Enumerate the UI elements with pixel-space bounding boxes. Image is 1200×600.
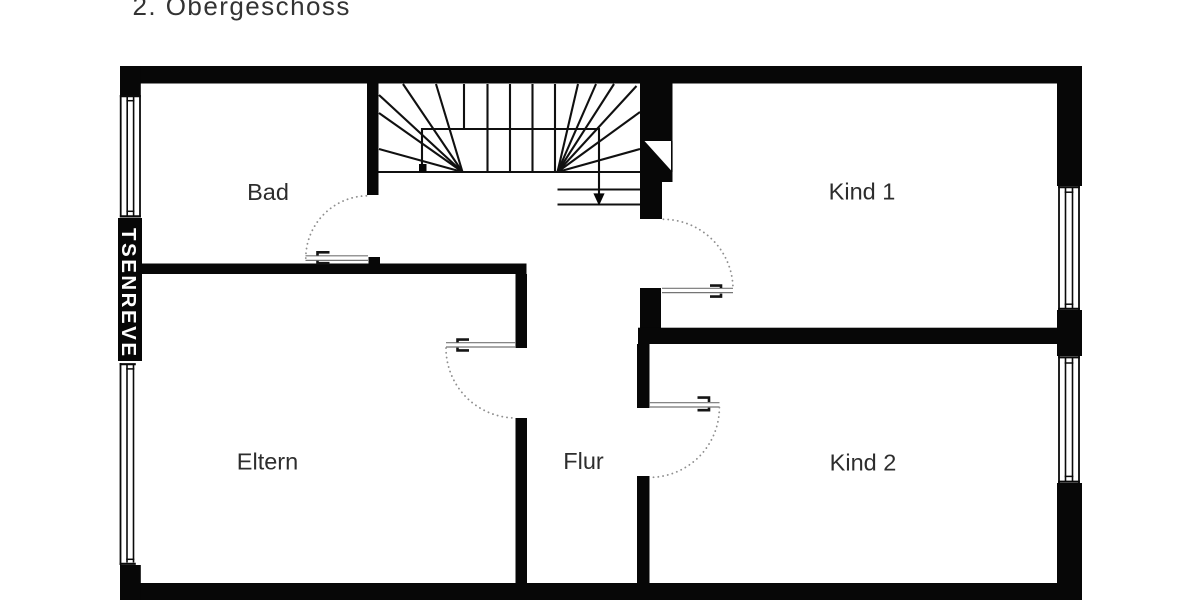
svg-text:Bad: Bad (247, 179, 289, 205)
svg-text:Flur: Flur (563, 448, 604, 474)
svg-text:2. Obergeschoss: 2. Obergeschoss (133, 0, 351, 21)
svg-text:Kind 1: Kind 1 (829, 179, 896, 205)
svg-text:TSENREVE: TSENREVE (117, 228, 140, 359)
svg-text:Eltern: Eltern (237, 449, 298, 475)
svg-text:Kind 2: Kind 2 (830, 449, 897, 475)
